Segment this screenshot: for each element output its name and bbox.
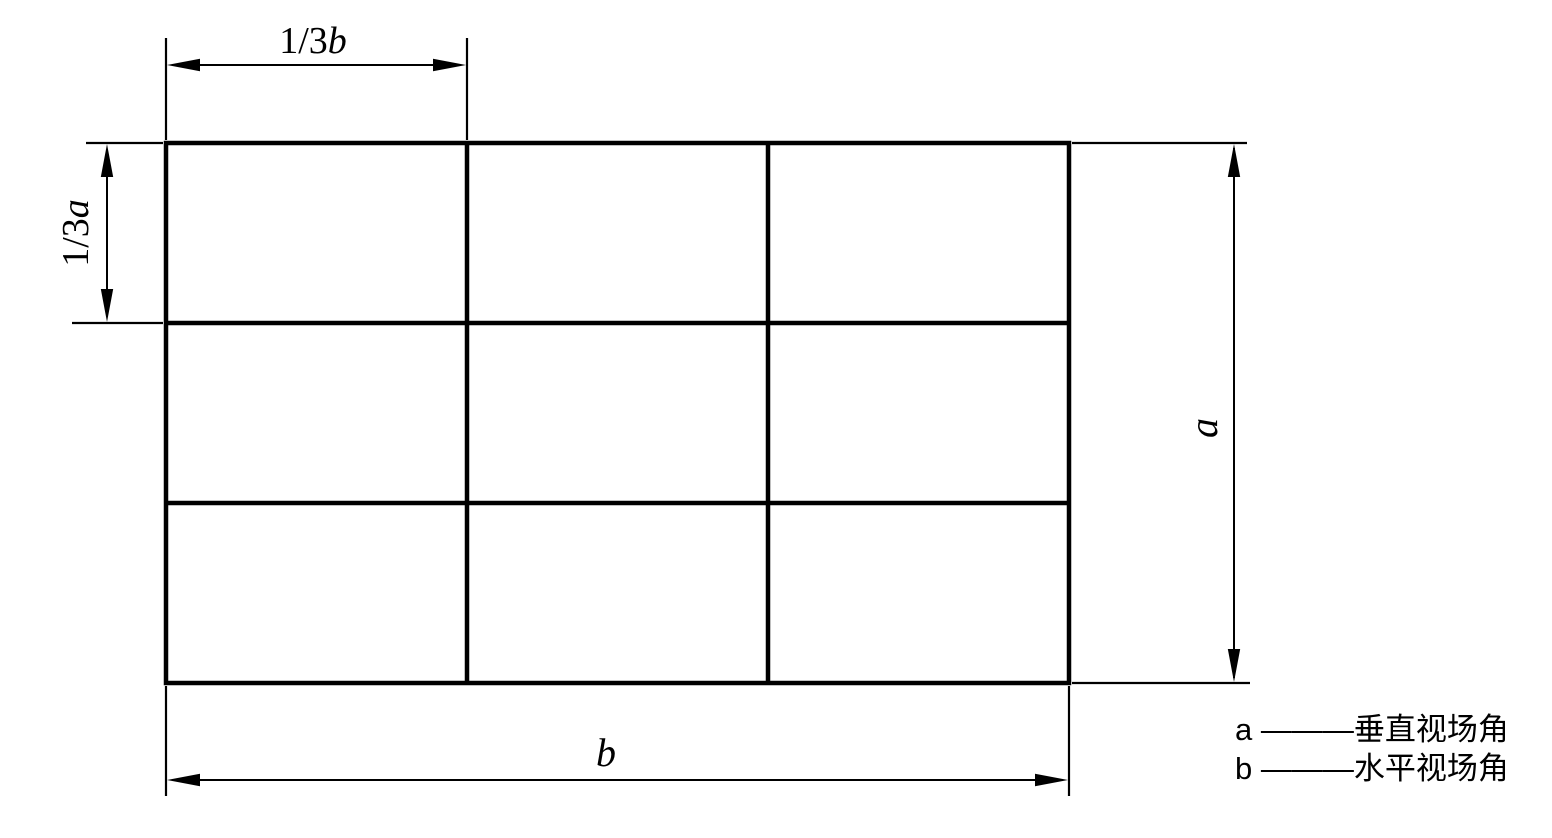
arrowhead-down-icon bbox=[101, 289, 113, 322]
legend-item-a: a ———垂直视场角 bbox=[1235, 712, 1509, 747]
arrowhead-up-icon bbox=[101, 144, 113, 177]
fov-grid-diagram: 1/3b 1/3a a b bbox=[0, 0, 1552, 838]
arrowhead-left-icon bbox=[167, 774, 200, 786]
dimension-left-third-a: 1/3a bbox=[55, 143, 163, 323]
fov-diagram-page: 1/3b 1/3a a b bbox=[0, 0, 1552, 838]
dimension-label-bottom: b bbox=[596, 730, 616, 775]
dimension-top-third-b: 1/3b bbox=[166, 20, 467, 140]
dimension-label-right: a bbox=[1181, 418, 1226, 438]
arrowhead-left-icon bbox=[167, 59, 200, 71]
dimension-label-left: 1/3a bbox=[55, 199, 97, 267]
arrowhead-up-icon bbox=[1228, 144, 1240, 177]
arrowhead-right-icon bbox=[433, 59, 466, 71]
legend: a ———垂直视场角 b ———水平视场角 bbox=[1235, 712, 1509, 786]
dimension-bottom-b: b bbox=[166, 686, 1069, 796]
arrowhead-down-icon bbox=[1228, 649, 1240, 682]
dimension-label-top: 1/3b bbox=[279, 20, 347, 62]
grid-border bbox=[166, 143, 1069, 683]
grid-3x3 bbox=[166, 143, 1069, 683]
arrowhead-right-icon bbox=[1035, 774, 1068, 786]
dimension-right-a: a bbox=[1072, 143, 1250, 683]
legend-item-b: b ———水平视场角 bbox=[1235, 751, 1509, 786]
